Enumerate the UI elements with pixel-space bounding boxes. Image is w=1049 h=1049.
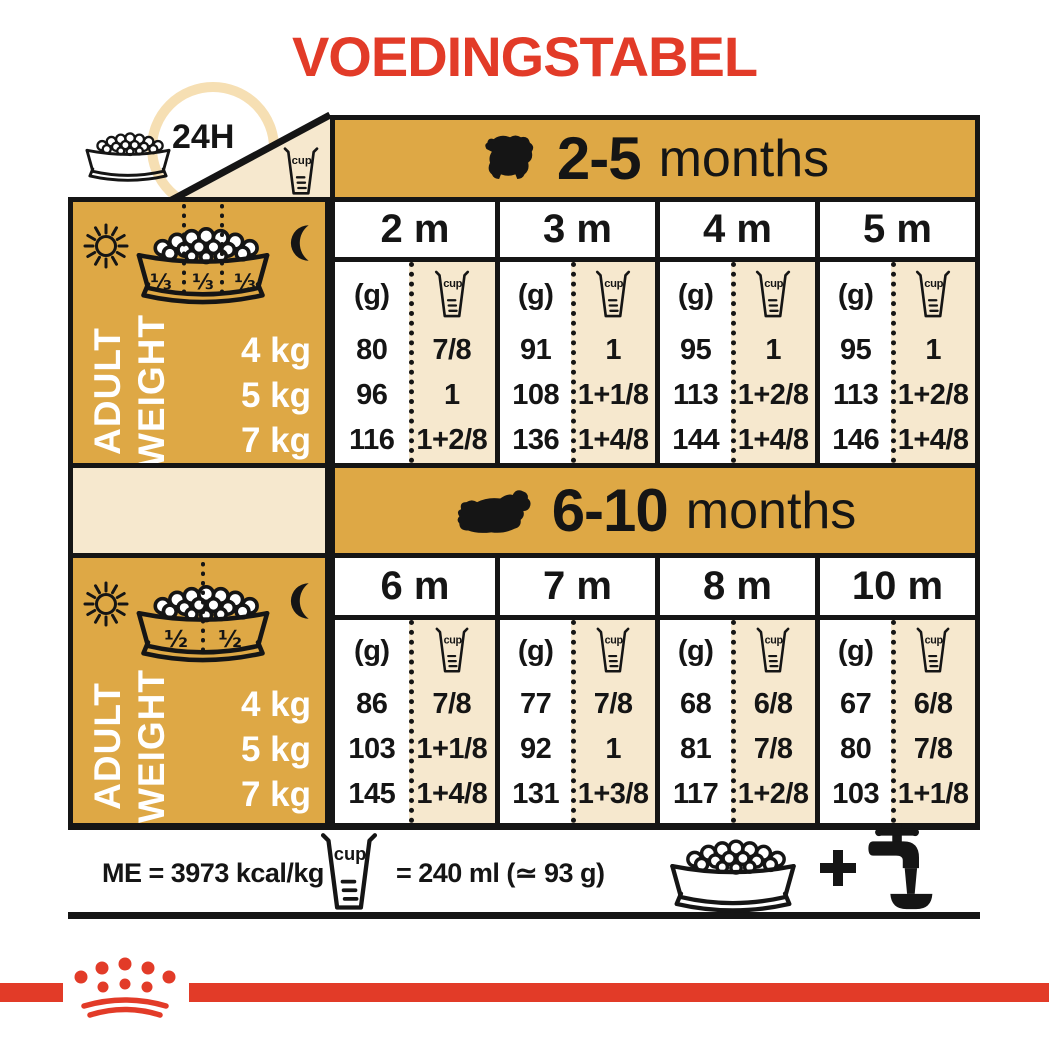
grams-value: 108 xyxy=(500,373,571,418)
svg-text:cup: cup xyxy=(925,634,944,646)
sidebar-2-5-months: ⅓ ⅓ ⅓ ADULTWEIGHT 4 kg 5 kg 7 kg xyxy=(68,197,330,468)
month-column-10m: 10 m (g) cup 676/8 807/8 1031+1/8 xyxy=(815,558,975,823)
feeding-grid-6-10-months: 6 m (g) cup 867/8 1031+1/8 1451+4/8 7 m … xyxy=(330,553,980,828)
weight-label: 5 kg xyxy=(191,373,311,418)
grams-value: 145 xyxy=(335,772,409,817)
bowl-halves-icon: ½ ½ xyxy=(128,561,278,666)
cups-value: 1 xyxy=(571,727,655,772)
grams-unit-label: (g) xyxy=(660,262,731,328)
month-column-7m: 7 m (g) cup 777/8 921 1311+3/8 xyxy=(495,558,655,823)
grams-unit-label: (g) xyxy=(820,262,891,328)
age-band-6-10-months: 6-10 months xyxy=(330,463,980,558)
cups-value: 7/8 xyxy=(571,682,655,727)
grams-value: 103 xyxy=(335,727,409,772)
svg-text:cup: cup xyxy=(443,634,462,646)
portion-fraction: ½ xyxy=(164,627,188,653)
month-column-6m: 6 m (g) cup 867/8 1031+1/8 1451+4/8 xyxy=(335,558,495,823)
measuring-cup-icon: cup xyxy=(281,146,321,198)
cups-value: 1+2/8 xyxy=(409,418,495,463)
month-header: 8 m xyxy=(660,558,815,620)
month-header: 3 m xyxy=(500,202,655,262)
cups-value: 1+1/8 xyxy=(571,373,655,418)
cup-icon: cup xyxy=(432,627,472,675)
feeding-grid-2-5-months: 2 m (g) cup 807/8 961 1161+2/8 3 m (g) c… xyxy=(330,197,980,468)
divider-bottom xyxy=(68,912,980,919)
24h-label: 24H xyxy=(172,118,234,157)
month-column-4m: 4 m (g) cup 951 1131+2/8 1441+4/8 xyxy=(655,202,815,463)
cup-equivalence: = 240 ml (≃ 93 g) xyxy=(396,858,604,889)
cups-value: 1+3/8 xyxy=(571,772,655,817)
sun-icon xyxy=(82,580,130,628)
cups-value: 1 xyxy=(731,328,815,373)
adult-weight-label: ADULTWEIGHT xyxy=(86,661,174,831)
spacer-cell xyxy=(68,463,330,558)
age-suffix: months xyxy=(659,129,830,189)
month-header: 10 m xyxy=(820,558,975,620)
grams-value: 80 xyxy=(820,727,891,772)
cup-label: cup xyxy=(292,155,312,167)
crown-logo xyxy=(74,948,180,1022)
cups-value: 1 xyxy=(891,328,975,373)
grams-value: 86 xyxy=(335,682,409,727)
grams-unit-label: (g) xyxy=(335,620,409,682)
red-baseline xyxy=(0,983,63,1002)
grams-value: 113 xyxy=(820,373,891,418)
cup-icon: cup xyxy=(753,270,793,320)
grams-value: 95 xyxy=(660,328,731,373)
grams-value: 113 xyxy=(660,373,731,418)
grams-value: 117 xyxy=(660,772,731,817)
grams-value: 144 xyxy=(660,418,731,463)
weight-label: 7 kg xyxy=(191,772,311,817)
month-column-2m: 2 m (g) cup 807/8 961 1161+2/8 xyxy=(335,202,495,463)
water-tap-icon xyxy=(856,822,940,918)
svg-text:cup: cup xyxy=(765,634,784,646)
weight-label: 5 kg xyxy=(191,727,311,772)
feeding-table-page: VOEDINGSTABEL 24H cup 2-5 months ⅓ ⅓ ⅓ xyxy=(0,0,1049,1049)
cups-value: 1+1/8 xyxy=(409,727,495,772)
grams-unit-label: (g) xyxy=(335,262,409,328)
moon-icon xyxy=(282,580,314,622)
divider-top xyxy=(68,823,980,830)
svg-text:cup: cup xyxy=(764,278,783,290)
grams-value: 131 xyxy=(500,772,571,817)
cups-value: 1+4/8 xyxy=(409,772,495,817)
month-column-8m: 8 m (g) cup 686/8 817/8 1171+2/8 xyxy=(655,558,815,823)
grams-value: 92 xyxy=(500,727,571,772)
adult-weight-label: ADULTWEIGHT xyxy=(86,306,174,476)
age-range: 2-5 xyxy=(557,124,641,193)
sun-icon xyxy=(82,222,130,270)
grams-unit-label: (g) xyxy=(820,620,891,682)
weight-label: 4 kg xyxy=(191,682,311,727)
svg-text:cup: cup xyxy=(924,278,943,290)
weight-label: 4 kg xyxy=(191,328,311,373)
cups-value: 7/8 xyxy=(409,328,495,373)
energy-value: ME = 3973 kcal/kg xyxy=(102,858,324,889)
adult-dog-silhouette-icon xyxy=(454,486,534,536)
age-band-2-5-months: 2-5 months xyxy=(330,115,980,202)
grams-value: 77 xyxy=(500,682,571,727)
grams-value: 81 xyxy=(660,727,731,772)
grams-value: 67 xyxy=(820,682,891,727)
svg-text:cup: cup xyxy=(605,634,624,646)
cups-value: 1+2/8 xyxy=(731,373,815,418)
weight-rows: 4 kg 5 kg 7 kg xyxy=(191,328,311,463)
cup-icon: cup xyxy=(432,270,472,320)
grams-value: 95 xyxy=(820,328,891,373)
cups-value: 6/8 xyxy=(891,682,975,727)
puppy-silhouette-icon xyxy=(481,131,539,187)
grams-value: 68 xyxy=(660,682,731,727)
cup-icon: cup xyxy=(593,270,633,320)
cups-value: 1+4/8 xyxy=(891,418,975,463)
weight-label: 7 kg xyxy=(191,418,311,463)
cups-value: 7/8 xyxy=(409,682,495,727)
month-column-3m: 3 m (g) cup 911 1081+1/8 1361+4/8 xyxy=(495,202,655,463)
grams-value: 80 xyxy=(335,328,409,373)
cups-value: 1 xyxy=(571,328,655,373)
grams-value: 146 xyxy=(820,418,891,463)
portion-fraction: ⅓ xyxy=(192,270,214,294)
cup-label: cup xyxy=(334,843,367,864)
cups-value: 1+1/8 xyxy=(891,772,975,817)
grams-unit-label: (g) xyxy=(500,620,571,682)
month-header: 7 m xyxy=(500,558,655,620)
svg-text:cup: cup xyxy=(604,278,623,290)
portion-fraction: ⅓ xyxy=(150,270,172,294)
moon-icon xyxy=(282,222,314,264)
weight-rows: 4 kg 5 kg 7 kg xyxy=(191,682,311,817)
plus-icon xyxy=(820,850,856,886)
portion-fraction: ⅓ xyxy=(234,270,256,294)
cups-value: 1+4/8 xyxy=(571,418,655,463)
grams-value: 96 xyxy=(335,373,409,418)
grams-value: 136 xyxy=(500,418,571,463)
grams-unit-label: (g) xyxy=(500,262,571,328)
cups-value: 7/8 xyxy=(731,727,815,772)
month-column-5m: 5 m (g) cup 951 1131+2/8 1461+4/8 xyxy=(815,202,975,463)
month-header: 4 m xyxy=(660,202,815,262)
month-header: 5 m xyxy=(820,202,975,262)
red-baseline xyxy=(189,983,1049,1002)
portion-fraction: ½ xyxy=(218,627,242,653)
cups-value: 1 xyxy=(409,373,495,418)
food-bowl-icon xyxy=(650,830,816,916)
cup-icon: cup xyxy=(753,627,793,675)
grams-unit-label: (g) xyxy=(660,620,731,682)
cups-value: 1+4/8 xyxy=(731,418,815,463)
page-title: VOEDINGSTABEL xyxy=(0,24,1049,89)
grams-value: 116 xyxy=(335,418,409,463)
cups-value: 7/8 xyxy=(891,727,975,772)
cup-icon: cup xyxy=(593,627,633,675)
measuring-cup-icon: cup xyxy=(316,832,382,914)
cups-value: 1+2/8 xyxy=(891,373,975,418)
cups-value: 6/8 xyxy=(731,682,815,727)
month-header: 6 m xyxy=(335,558,495,620)
cups-value: 1+2/8 xyxy=(731,772,815,817)
month-header: 2 m xyxy=(335,202,495,262)
age-range: 6-10 xyxy=(552,476,668,545)
cup-icon: cup xyxy=(913,270,953,320)
cup-icon: cup xyxy=(913,627,953,675)
grams-value: 103 xyxy=(820,772,891,817)
age-suffix: months xyxy=(686,481,857,541)
grams-value: 91 xyxy=(500,328,571,373)
food-bowl-icon xyxy=(80,124,176,186)
bowl-thirds-icon: ⅓ ⅓ ⅓ xyxy=(128,203,278,308)
sidebar-6-10-months: ½ ½ ADULTWEIGHT 4 kg 5 kg 7 kg xyxy=(68,553,330,828)
svg-text:cup: cup xyxy=(443,278,462,290)
